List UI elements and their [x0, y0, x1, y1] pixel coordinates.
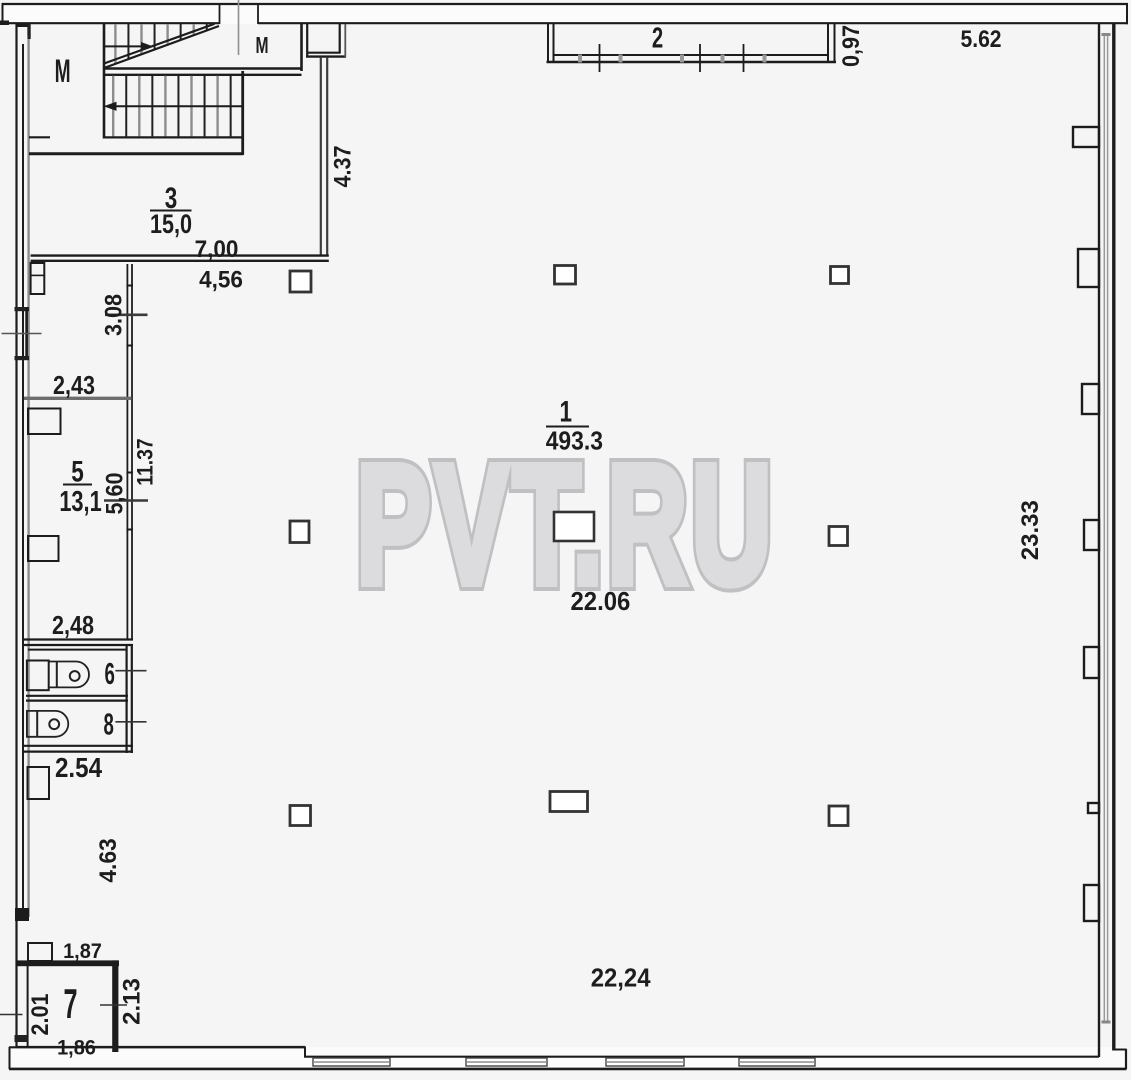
- svg-text:22,24: 22,24: [591, 963, 651, 992]
- svg-text:23.33: 23.33: [1017, 500, 1044, 560]
- svg-text:M: M: [255, 33, 268, 59]
- svg-text:M: M: [55, 53, 71, 89]
- svg-text:11.37: 11.37: [133, 438, 157, 485]
- svg-text:2.13: 2.13: [119, 978, 146, 1025]
- svg-text:4,56: 4,56: [199, 265, 243, 292]
- svg-text:0,97: 0,97: [837, 25, 864, 67]
- svg-text:5: 5: [71, 454, 84, 488]
- svg-text:2: 2: [652, 22, 663, 54]
- svg-text:5.62: 5.62: [960, 26, 1001, 53]
- svg-text:15,0: 15,0: [150, 210, 192, 240]
- svg-text:4.63: 4.63: [95, 838, 122, 882]
- svg-text:2,43: 2,43: [53, 371, 95, 400]
- svg-text:2.54: 2.54: [55, 754, 103, 784]
- svg-text:3.08: 3.08: [100, 294, 127, 336]
- svg-text:22.06: 22.06: [570, 587, 630, 616]
- svg-text:1: 1: [560, 394, 573, 428]
- svg-text:7: 7: [63, 982, 77, 1028]
- svg-text:5,60: 5,60: [101, 472, 128, 514]
- svg-text:8: 8: [104, 708, 114, 742]
- svg-text:6: 6: [105, 657, 115, 691]
- svg-text:13,1: 13,1: [59, 486, 101, 518]
- svg-text:7,00: 7,00: [195, 235, 239, 262]
- svg-text:1,87: 1,87: [63, 940, 102, 964]
- svg-text:2.01: 2.01: [26, 993, 53, 1035]
- svg-text:2,48: 2,48: [52, 611, 94, 640]
- svg-text:493.3: 493.3: [546, 427, 603, 456]
- svg-text:4.37: 4.37: [329, 145, 356, 187]
